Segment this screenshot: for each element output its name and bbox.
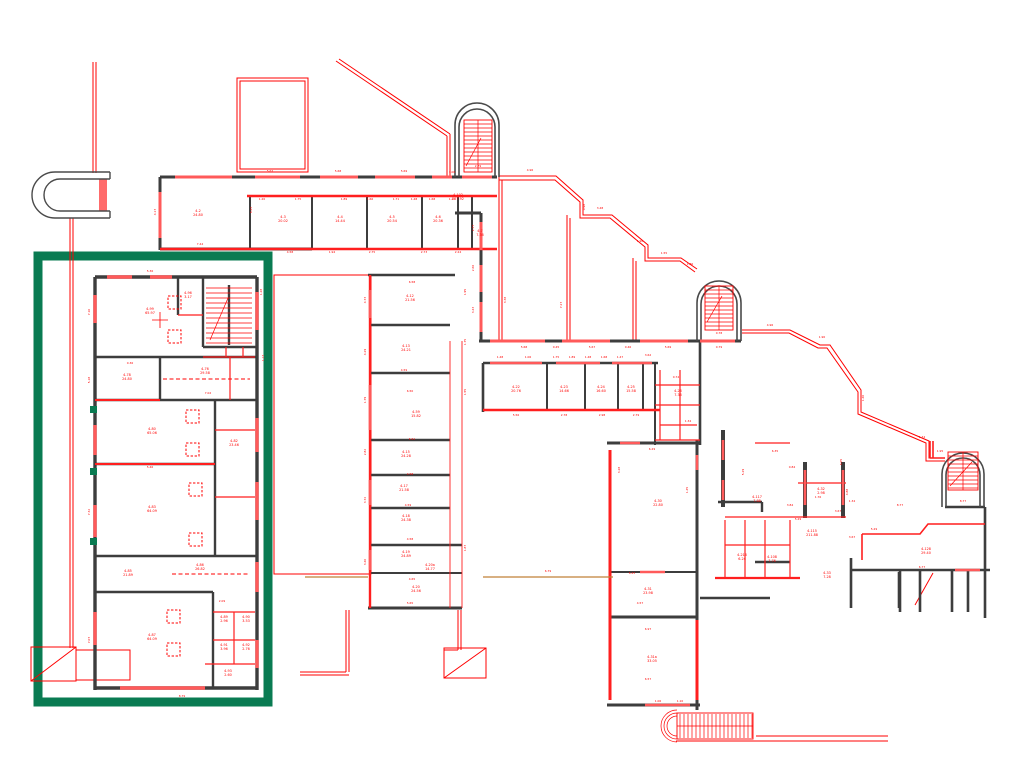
ext-stair-treads bbox=[677, 714, 753, 738]
dim-label: 6.29 bbox=[649, 447, 656, 451]
dim-label: 3.62 bbox=[645, 353, 652, 357]
misc-windows bbox=[370, 290, 980, 570]
dim-label: 1.20 bbox=[259, 197, 266, 201]
room-label: 4-7824.80 bbox=[122, 373, 132, 381]
dim-label: 5.69 bbox=[665, 345, 672, 349]
dim-label: 1.94 bbox=[329, 250, 336, 254]
dim-label: 1.68 bbox=[601, 355, 608, 359]
dim-label: 2.73 bbox=[421, 250, 428, 254]
dim-label: 3.67 bbox=[835, 509, 842, 513]
room-label: 4-8521.89 bbox=[123, 569, 133, 577]
dim-label: 6.79 bbox=[545, 569, 552, 573]
room-label: 4-1324.21 bbox=[401, 344, 411, 352]
dim-label: 1.86 bbox=[687, 262, 694, 266]
dim-label: 1.75 bbox=[553, 355, 560, 359]
dim-label: 0.36 bbox=[127, 361, 134, 365]
dim-label: 1.55 bbox=[463, 389, 467, 396]
crossed-box-center bbox=[444, 648, 486, 678]
dim-label: 1.76 bbox=[815, 495, 822, 499]
dim-label: 6.97 bbox=[645, 627, 652, 631]
dim-label: 4.58 bbox=[287, 250, 294, 254]
dim-label: 5.69 bbox=[401, 169, 408, 173]
middle-cluster-partitions bbox=[655, 370, 700, 440]
room-label: 4-922.76 bbox=[242, 643, 250, 651]
room-label: 4-2220.76 bbox=[511, 385, 521, 393]
ext-stair-turn bbox=[661, 710, 677, 742]
room-label: 4-1177.88 bbox=[752, 495, 762, 503]
dim-label: 0.45 bbox=[553, 345, 560, 349]
dim-label: 4.57 bbox=[637, 601, 644, 605]
room-label: 4-913.96 bbox=[220, 643, 228, 651]
dim-label: 1.34 bbox=[849, 499, 856, 503]
room-label: 4-12829.40 bbox=[921, 547, 931, 555]
room-label: 4-337.28 bbox=[823, 571, 831, 579]
dim-label: 3.84 bbox=[787, 503, 794, 507]
hall-outline-rect bbox=[274, 275, 371, 574]
left-block-windows bbox=[95, 277, 257, 688]
lower-terrace-lines bbox=[300, 610, 461, 675]
dim-label: 1.34 bbox=[919, 435, 926, 439]
dim-label: 0.79 bbox=[716, 345, 723, 349]
room-label: 4-8065.06 bbox=[147, 427, 157, 435]
dim-label: 5.29 bbox=[741, 469, 745, 476]
dim-label: 1.66 bbox=[367, 197, 374, 201]
dim-label: 3.40 bbox=[363, 559, 367, 566]
column-corridor-lines bbox=[450, 341, 462, 608]
room-label: 4-3123.98 bbox=[643, 587, 653, 595]
room-label: 4-1524.28 bbox=[401, 450, 411, 458]
room-label: 4-932.60 bbox=[224, 669, 232, 677]
room-label: 4-5915.82 bbox=[411, 410, 421, 418]
dim-label: 2.75 bbox=[369, 250, 376, 254]
roof-diagonal-1 bbox=[336, 59, 450, 177]
dim-label: 1.47 bbox=[449, 197, 456, 201]
dim-label: 4.65 bbox=[409, 577, 416, 581]
floor-plan-svg: 4-224.804-320.024-414.444-520.544-620.36… bbox=[0, 0, 1032, 762]
dim-label: 6.57 bbox=[645, 677, 652, 681]
dim-label: 6.58 bbox=[409, 280, 416, 284]
room-label: 4-115211.88 bbox=[806, 529, 818, 537]
dim-label: 5.56 bbox=[513, 413, 520, 417]
dim-label: 1.89 bbox=[341, 197, 348, 201]
dim-label: 4.88 bbox=[845, 489, 849, 496]
wing-red-walls bbox=[160, 196, 497, 249]
dim-label: 1.48 bbox=[411, 197, 418, 201]
dim-label: 3.28 bbox=[617, 467, 621, 474]
dim-label: 1.06 bbox=[525, 355, 532, 359]
dim-label: 7.44 bbox=[197, 242, 204, 246]
dim-label: 5.46 bbox=[147, 465, 154, 469]
dim-label: 1.55 bbox=[661, 251, 668, 255]
room-label: 4-520.54 bbox=[387, 215, 397, 223]
room-label: 4-224.80 bbox=[193, 209, 203, 217]
dim-label: 0.84 bbox=[789, 465, 796, 469]
dim-label: 2.79 bbox=[633, 413, 640, 417]
dim-label: 1.13 bbox=[261, 355, 265, 362]
riser-lines-left bbox=[70, 218, 73, 648]
room-label: 4-9965.97 bbox=[145, 307, 155, 315]
dim-label: 0.46 bbox=[625, 345, 632, 349]
dim-label: 5.29 bbox=[795, 517, 802, 521]
dim-label: 1.28 bbox=[259, 289, 263, 296]
dim-label: 5.67 bbox=[589, 345, 596, 349]
room-label: 4-320.02 bbox=[278, 215, 288, 223]
dim-label: 5.67 bbox=[267, 169, 274, 173]
room-label: 4-2416.60 bbox=[596, 385, 606, 393]
room-label: 4-77.36 bbox=[476, 229, 484, 237]
dim-label: 4.29 bbox=[363, 349, 367, 356]
room-labels: 4-224.804-320.024-414.444-520.544-620.36… bbox=[122, 193, 931, 677]
room-label: 4-3022.80 bbox=[653, 499, 663, 507]
dim-label: 6.05 bbox=[839, 459, 843, 466]
dim-label: 4.96 bbox=[527, 168, 534, 172]
echelon-terrace-outer bbox=[499, 176, 697, 269]
dim-label: 8.77 bbox=[960, 499, 967, 503]
dim-label: 1.87 bbox=[463, 545, 467, 552]
dim-label: 1.48 bbox=[497, 355, 504, 359]
dim-label: 8.77 bbox=[897, 503, 904, 507]
horseshoe-fill bbox=[99, 179, 107, 211]
dim-label: 5.68 bbox=[521, 345, 528, 349]
room-label: 4-963.17 bbox=[184, 291, 192, 299]
wing-windows bbox=[160, 177, 492, 238]
room-label: 4-2166.24 bbox=[737, 553, 747, 561]
dim-label: 2.66 bbox=[471, 265, 475, 272]
dim-label: 3.48 bbox=[597, 206, 604, 210]
dim-label: 1.75 bbox=[463, 339, 467, 346]
dim-label: 1.71 bbox=[393, 197, 400, 201]
dim-label: 1.06 bbox=[449, 170, 456, 174]
dim-label: 1.89 bbox=[569, 355, 576, 359]
dim-label: 1.45 bbox=[685, 487, 689, 494]
dim-label: 2.79 bbox=[475, 164, 482, 168]
left-cluster-partitions bbox=[178, 315, 255, 664]
floor-plan-screenshot: 4-224.804-320.024-414.444-520.544-620.36… bbox=[0, 0, 1032, 762]
left-block-outer bbox=[95, 277, 257, 690]
room-label: 4-8223.46 bbox=[229, 439, 239, 447]
room-label: 4-20a14.77 bbox=[425, 563, 435, 571]
room-label: 4-2024.56 bbox=[411, 585, 421, 593]
middle-wing-walls bbox=[483, 341, 700, 445]
room-label: 4-31a33.05 bbox=[647, 655, 657, 663]
dim-label: 1.48 bbox=[585, 355, 592, 359]
dim-label: 1.10 bbox=[677, 699, 684, 703]
dim-label: 3.38 bbox=[503, 297, 507, 304]
dim-label: 7.32 bbox=[87, 509, 91, 516]
dim-label: 5.68 bbox=[335, 169, 342, 173]
dim-label: 1.47 bbox=[617, 355, 624, 359]
symbols bbox=[90, 296, 613, 656]
room-label: 4-1221.56 bbox=[405, 294, 415, 302]
stair-hatching bbox=[206, 120, 978, 742]
room-label: 4-8364.09 bbox=[147, 505, 157, 513]
room-label: 4-620.36 bbox=[433, 215, 443, 223]
dim-label: 2.09 bbox=[219, 599, 226, 603]
stair3-treads bbox=[948, 452, 978, 490]
atrium-partitions bbox=[499, 176, 636, 341]
room-label: 4-892.96 bbox=[220, 615, 228, 623]
dim-label: 4.73 bbox=[363, 297, 367, 304]
stair2-treads bbox=[705, 286, 733, 330]
dim-label: 6.43 bbox=[629, 571, 636, 575]
dim-label: 1.95 bbox=[937, 449, 944, 453]
column-footprints bbox=[167, 296, 202, 656]
dimension-labels: 5.675.685.691.062.794.176.437.444.581.94… bbox=[87, 164, 966, 703]
dim-label: 0.78 bbox=[716, 331, 723, 335]
dim-label: 0.98 bbox=[582, 204, 586, 211]
dim-label: 1.06 bbox=[655, 699, 662, 703]
dim-label: 4.96 bbox=[767, 323, 774, 327]
dim-label: 7.07 bbox=[87, 637, 91, 644]
dim-label: 6.50 bbox=[407, 389, 414, 393]
dim-label: 2.98 bbox=[599, 413, 606, 417]
echelon-terrace2-outer bbox=[742, 330, 945, 458]
dim-label: 3.67 bbox=[849, 535, 856, 539]
dim-label: 5.65 bbox=[407, 601, 414, 605]
dim-label: 6.43 bbox=[249, 207, 253, 214]
bottom-block-walls bbox=[368, 440, 700, 710]
room-label: 4-2314.66 bbox=[559, 385, 569, 393]
dim-label: 0.74 bbox=[673, 375, 680, 379]
dim-label: 2.82 bbox=[363, 449, 367, 456]
terrace-rect bbox=[237, 78, 308, 172]
dim-label: 4.58 bbox=[407, 537, 414, 541]
top-wing-walls bbox=[160, 177, 497, 250]
room-label: 4-903.53 bbox=[242, 615, 250, 623]
corridor-dashed-lines bbox=[163, 379, 250, 574]
dim-label: 2.78 bbox=[561, 413, 568, 417]
dim-label: 2.77 bbox=[471, 225, 475, 232]
left-block-inner bbox=[95, 277, 257, 688]
dim-label: 1.79 bbox=[363, 397, 367, 404]
dim-label: 2.24 bbox=[455, 250, 462, 254]
dim-label: 1.68 bbox=[429, 197, 436, 201]
crossed-box-left bbox=[31, 647, 130, 681]
dim-label: 1.75 bbox=[295, 197, 302, 201]
room-label: 4-322.98 bbox=[817, 487, 825, 495]
dim-label: 1.90 bbox=[819, 335, 826, 339]
room-label: 4-8626.82 bbox=[195, 563, 205, 571]
room-label: 4-1721.58 bbox=[399, 484, 409, 492]
dim-label: 6.77 bbox=[919, 565, 926, 569]
dim-label: 1.90 bbox=[637, 239, 644, 243]
room-label: 4-414.44 bbox=[335, 215, 345, 223]
door-diagonal bbox=[915, 573, 933, 605]
room-label: 4-7629.58 bbox=[200, 367, 210, 375]
dim-label: 6.51 bbox=[409, 437, 416, 441]
dim-label: 4.59 bbox=[405, 503, 412, 507]
echelon-terrace2-inner bbox=[742, 333, 945, 461]
atrium-walls bbox=[455, 213, 741, 341]
dim-label: 5.36 bbox=[147, 269, 154, 273]
dim-label: 1.95 bbox=[463, 289, 467, 296]
middle-wing-dividers bbox=[547, 363, 655, 445]
dim-label: 7.27 bbox=[559, 302, 563, 309]
room-label: 4-1824.38 bbox=[401, 514, 411, 522]
dim-label: 4.58 bbox=[407, 472, 414, 476]
horseshoe-loop bbox=[32, 172, 110, 218]
riser-lines-top bbox=[93, 62, 96, 173]
room-label: 4-2515.58 bbox=[626, 385, 636, 393]
dim-label: 3.43 bbox=[471, 307, 475, 314]
dim-label: 5.29 bbox=[871, 527, 878, 531]
room-label: 4-1924.89 bbox=[401, 550, 411, 558]
dim-label: 7.02 bbox=[205, 391, 212, 395]
dim-label: 6.35 bbox=[772, 449, 779, 453]
dim-label: 4.59 bbox=[401, 368, 408, 372]
dim-label: 1.34 bbox=[685, 419, 692, 423]
dim-label: 4.17 bbox=[153, 209, 157, 216]
room-label: 4-267.36 bbox=[674, 389, 682, 397]
dim-label: 7.10 bbox=[87, 309, 91, 316]
room-label: 4-8764.09 bbox=[147, 633, 157, 641]
red-walls bbox=[95, 196, 985, 700]
dim-label: 8.79 bbox=[179, 694, 186, 698]
dim-label: 5.18 bbox=[87, 377, 91, 384]
dim-label: 1.40 bbox=[861, 395, 865, 402]
room-label: 4-1087.76 bbox=[767, 555, 777, 563]
dim-label: 3.72 bbox=[363, 497, 367, 504]
